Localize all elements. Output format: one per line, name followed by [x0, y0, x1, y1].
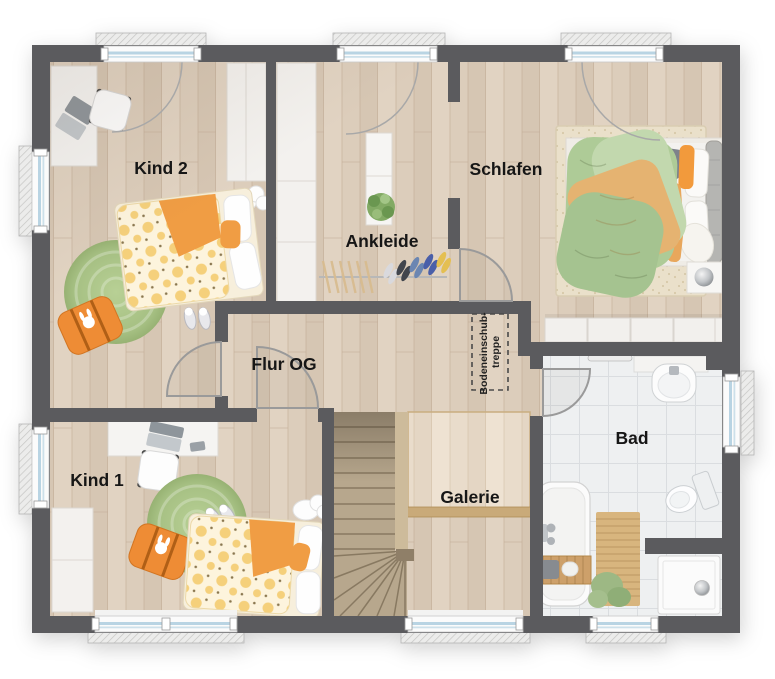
wall-exterior-east	[722, 45, 740, 633]
wall-schlafen-south	[518, 342, 723, 356]
room-label-schlafen: Schlafen	[470, 159, 543, 179]
window-sill	[333, 33, 445, 46]
floorplan: Bodeneinschub- treppe Kind 2 Ankleide Sc…	[0, 0, 775, 679]
window-sill	[561, 33, 671, 46]
window-sill	[19, 146, 32, 236]
wall-kind1-north	[32, 408, 257, 422]
wall-bad-west-north	[530, 342, 543, 369]
window-top-ankleide	[337, 46, 437, 62]
room-label-kind1: Kind 1	[70, 470, 124, 490]
attic-hatch-label-line2: treppe	[490, 336, 502, 368]
wall-vanity-pier	[706, 356, 723, 370]
room-label-bad: Bad	[615, 428, 648, 448]
wall-kind2-door-stub-north	[215, 301, 228, 342]
room-label-flur: Flur OG	[251, 354, 316, 374]
wall-ankleide-schlafen-north	[448, 61, 460, 102]
floorplan-canvas: Bodeneinschub- treppe Kind 2 Ankleide Sc…	[0, 0, 775, 679]
window-south-kind1	[92, 610, 237, 632]
wall-ankleide-schlafen-south	[448, 198, 460, 249]
window-top-schlafen	[565, 46, 663, 62]
wall-stairwell	[322, 408, 334, 616]
room-label-kind2: Kind 2	[134, 158, 188, 178]
light-overlay	[50, 61, 723, 616]
window-south-bad	[590, 616, 658, 632]
room-label-ankleide: Ankleide	[346, 231, 419, 251]
window-south-galerie	[405, 610, 523, 632]
room-label-galerie: Galerie	[440, 487, 500, 507]
window-west-kind1	[32, 427, 49, 508]
window-east-bad	[723, 374, 740, 453]
wall-exterior-west	[32, 45, 50, 633]
window-sill	[19, 424, 32, 514]
window-sill	[96, 33, 206, 46]
wall-kind2-ankleide	[266, 61, 276, 307]
wall-flur-east	[518, 301, 531, 348]
wall-bad-west-south	[530, 416, 543, 616]
window-west-kind2	[32, 149, 49, 233]
wall-shower-partition	[645, 538, 723, 554]
window-sill	[741, 371, 754, 455]
attic-hatch-label-line1: Bodeneinschub-	[478, 312, 490, 395]
window-top-kind2	[101, 46, 201, 62]
